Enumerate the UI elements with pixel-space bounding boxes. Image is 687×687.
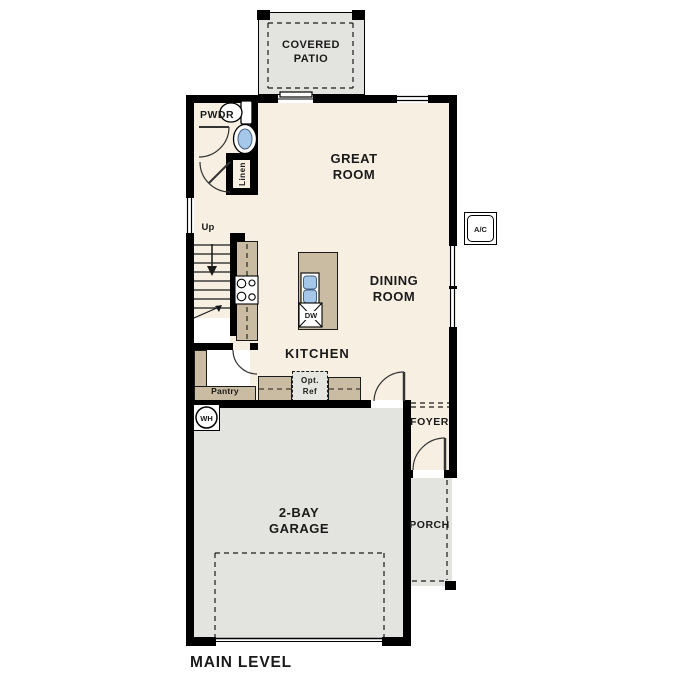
porch-label: PORCH <box>407 519 452 532</box>
garage-entry-door <box>374 372 404 401</box>
dishwasher-label: DW <box>303 311 319 320</box>
opt-ref-label: Opt. Ref <box>298 375 322 397</box>
window-right-lower <box>449 289 457 327</box>
dining-room-label: DINING ROOM <box>359 273 429 305</box>
garage-label: 2-BAY GARAGE <box>263 505 335 537</box>
powder-sink-icon <box>234 125 257 154</box>
pantry-door <box>233 350 257 374</box>
window-left <box>186 198 194 233</box>
hall-closet-door <box>200 162 230 192</box>
sliding-door <box>278 92 313 103</box>
island-sink-icon <box>301 273 319 304</box>
stair-direction-arrow <box>207 266 217 276</box>
foyer-dashed-lines <box>411 403 449 407</box>
floor-plan: COVERED PATIO PWDR Linen GREAT ROOM Up D… <box>0 0 687 687</box>
pantry-label: Pantry <box>196 386 254 397</box>
stairs-up-label: Up <box>198 222 218 234</box>
garage-door-threshold <box>216 639 382 642</box>
powder-door <box>199 127 229 157</box>
floorplan-linework <box>0 0 687 687</box>
linen-label: Linen <box>229 160 257 188</box>
window-right-upper <box>449 246 457 286</box>
range-cooktop-icon <box>235 276 258 304</box>
covered-patio-label: COVERED PATIO <box>271 39 351 66</box>
front-door <box>413 438 445 470</box>
powder-room-label: PWDR <box>194 109 240 122</box>
window-top <box>397 95 428 103</box>
ac-unit-label: A/C <box>464 225 497 234</box>
foyer-label: FOYER <box>407 416 452 429</box>
garage-door-dashed <box>215 553 384 637</box>
main-level-title: MAIN LEVEL <box>190 653 330 672</box>
kitchen-label: KITCHEN <box>285 346 349 362</box>
stairs <box>194 244 230 318</box>
great-room-label: GREAT ROOM <box>319 151 389 183</box>
water-heater-label: WH <box>197 414 216 423</box>
